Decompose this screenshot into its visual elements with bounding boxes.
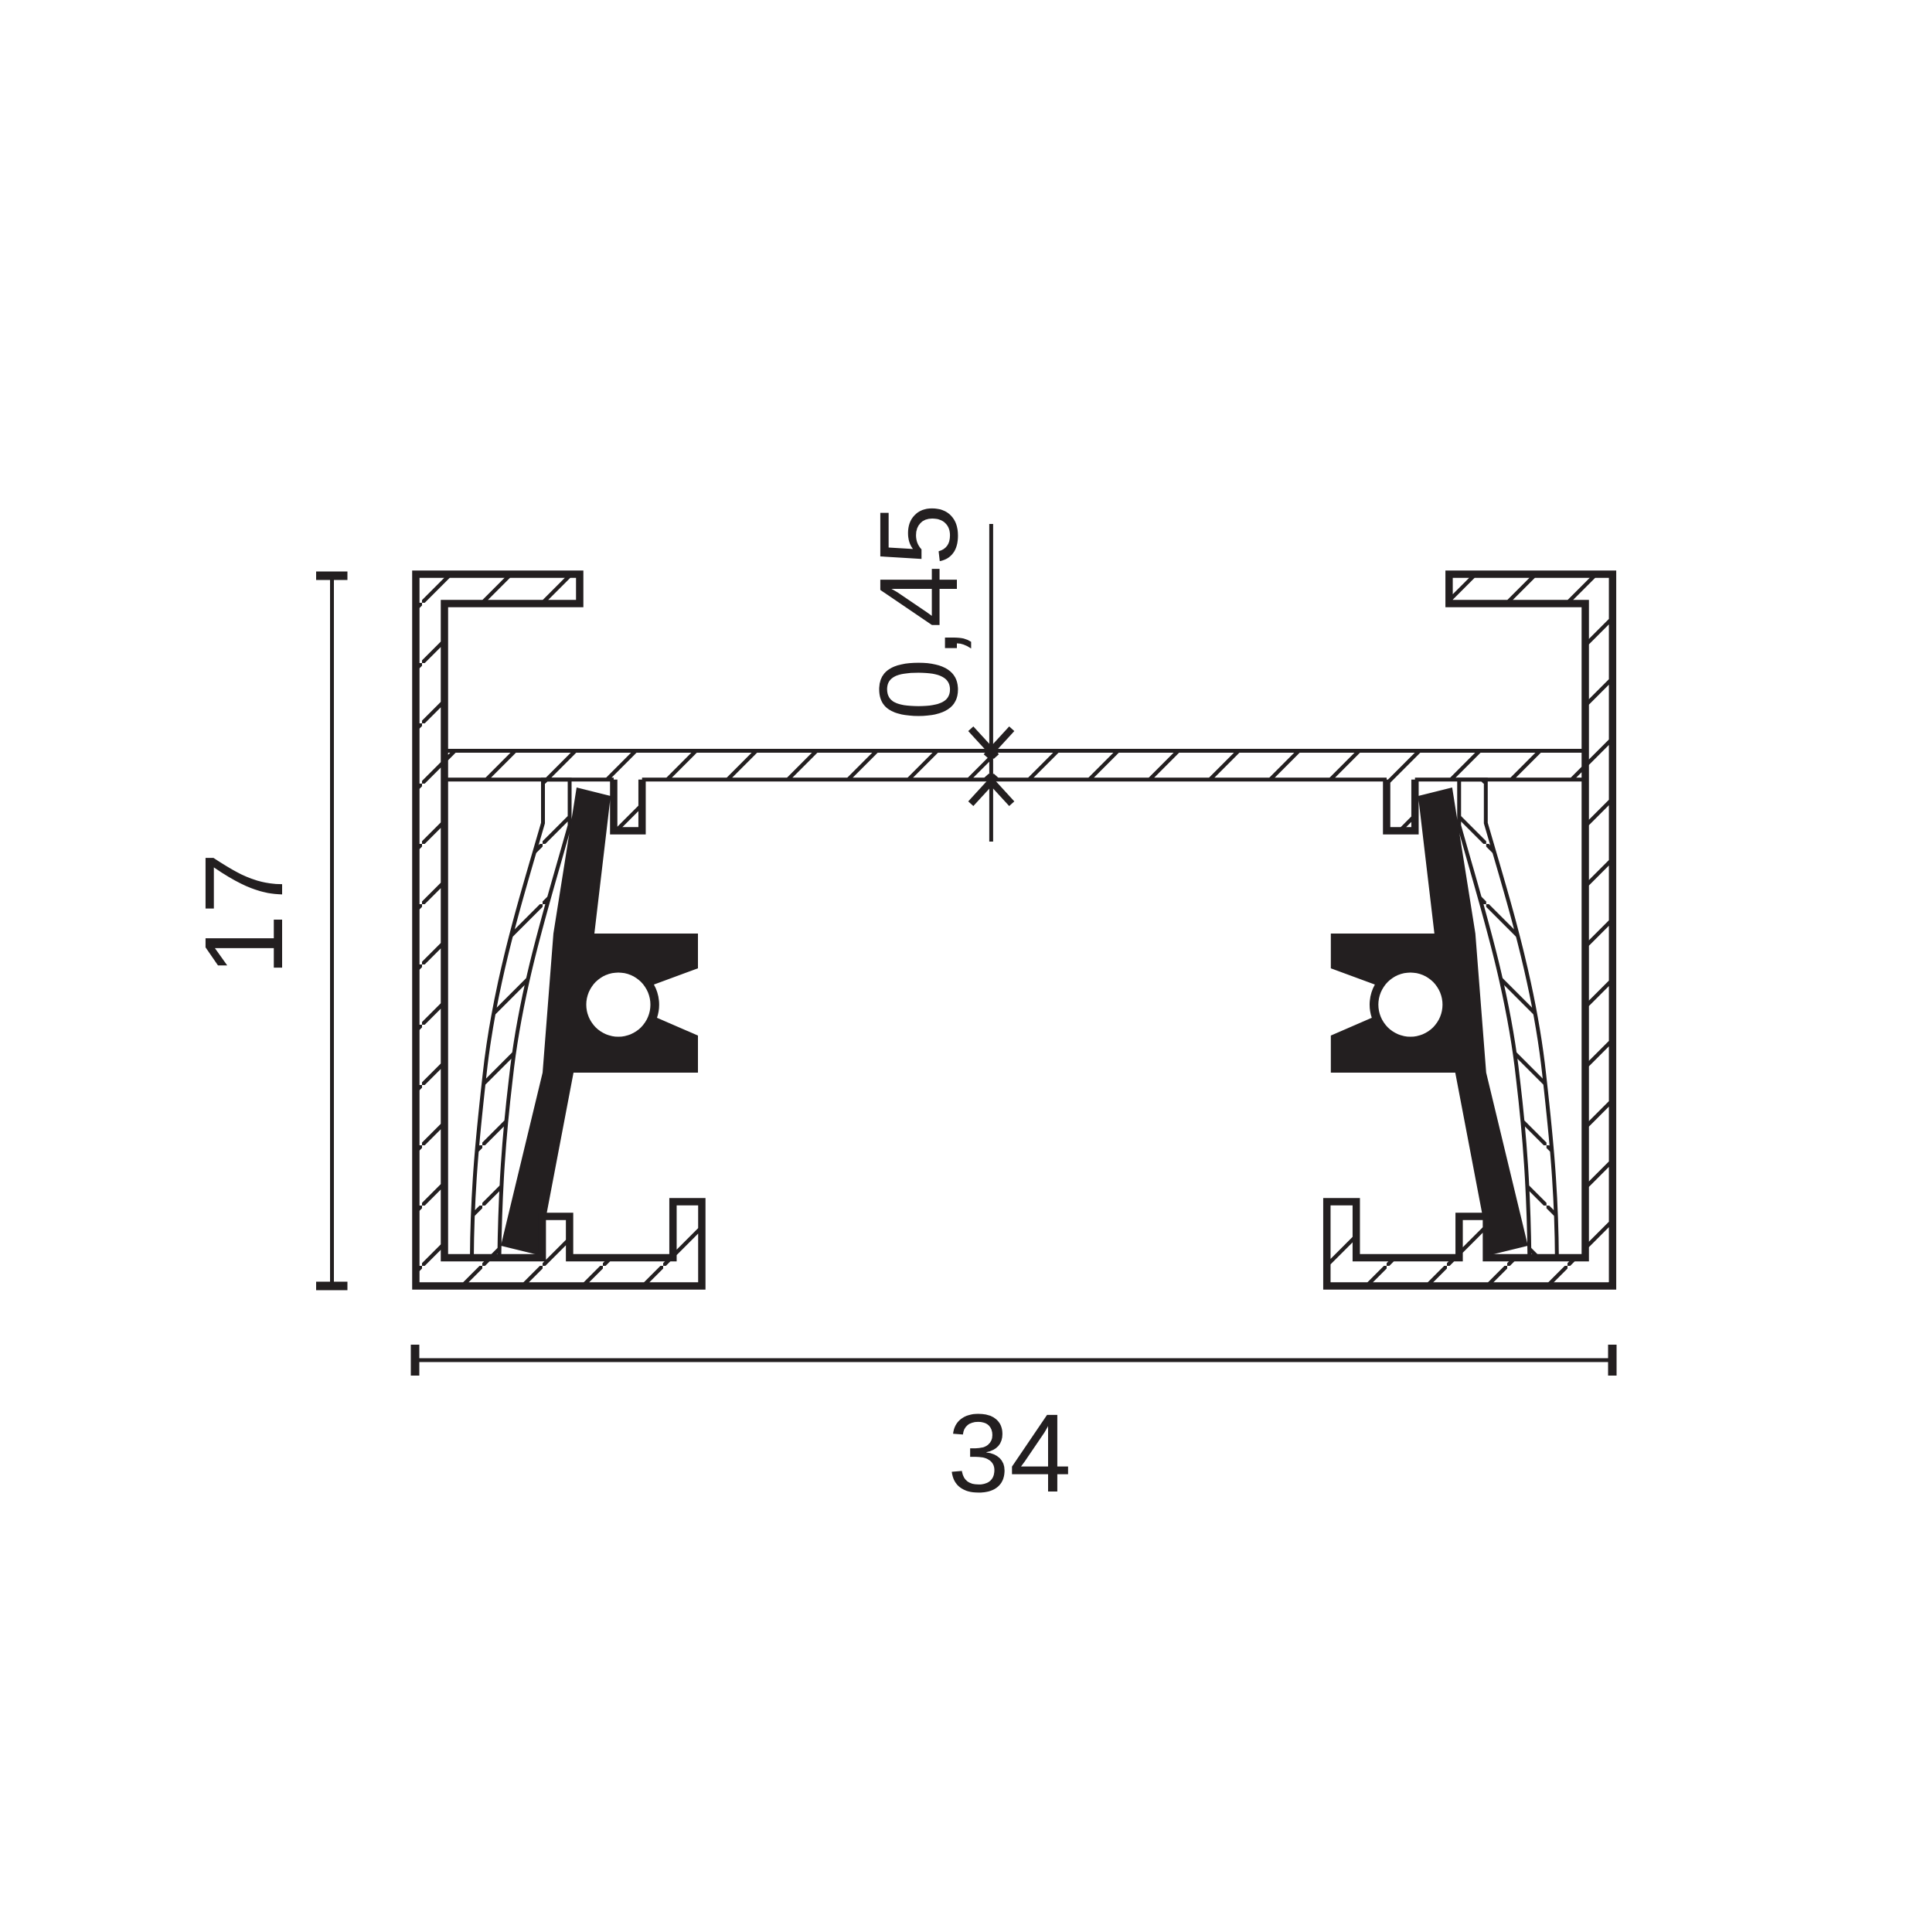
svg-text:17: 17 [182, 852, 306, 976]
svg-text:34: 34 [948, 1391, 1071, 1515]
svg-text:0,45: 0,45 [856, 504, 981, 720]
